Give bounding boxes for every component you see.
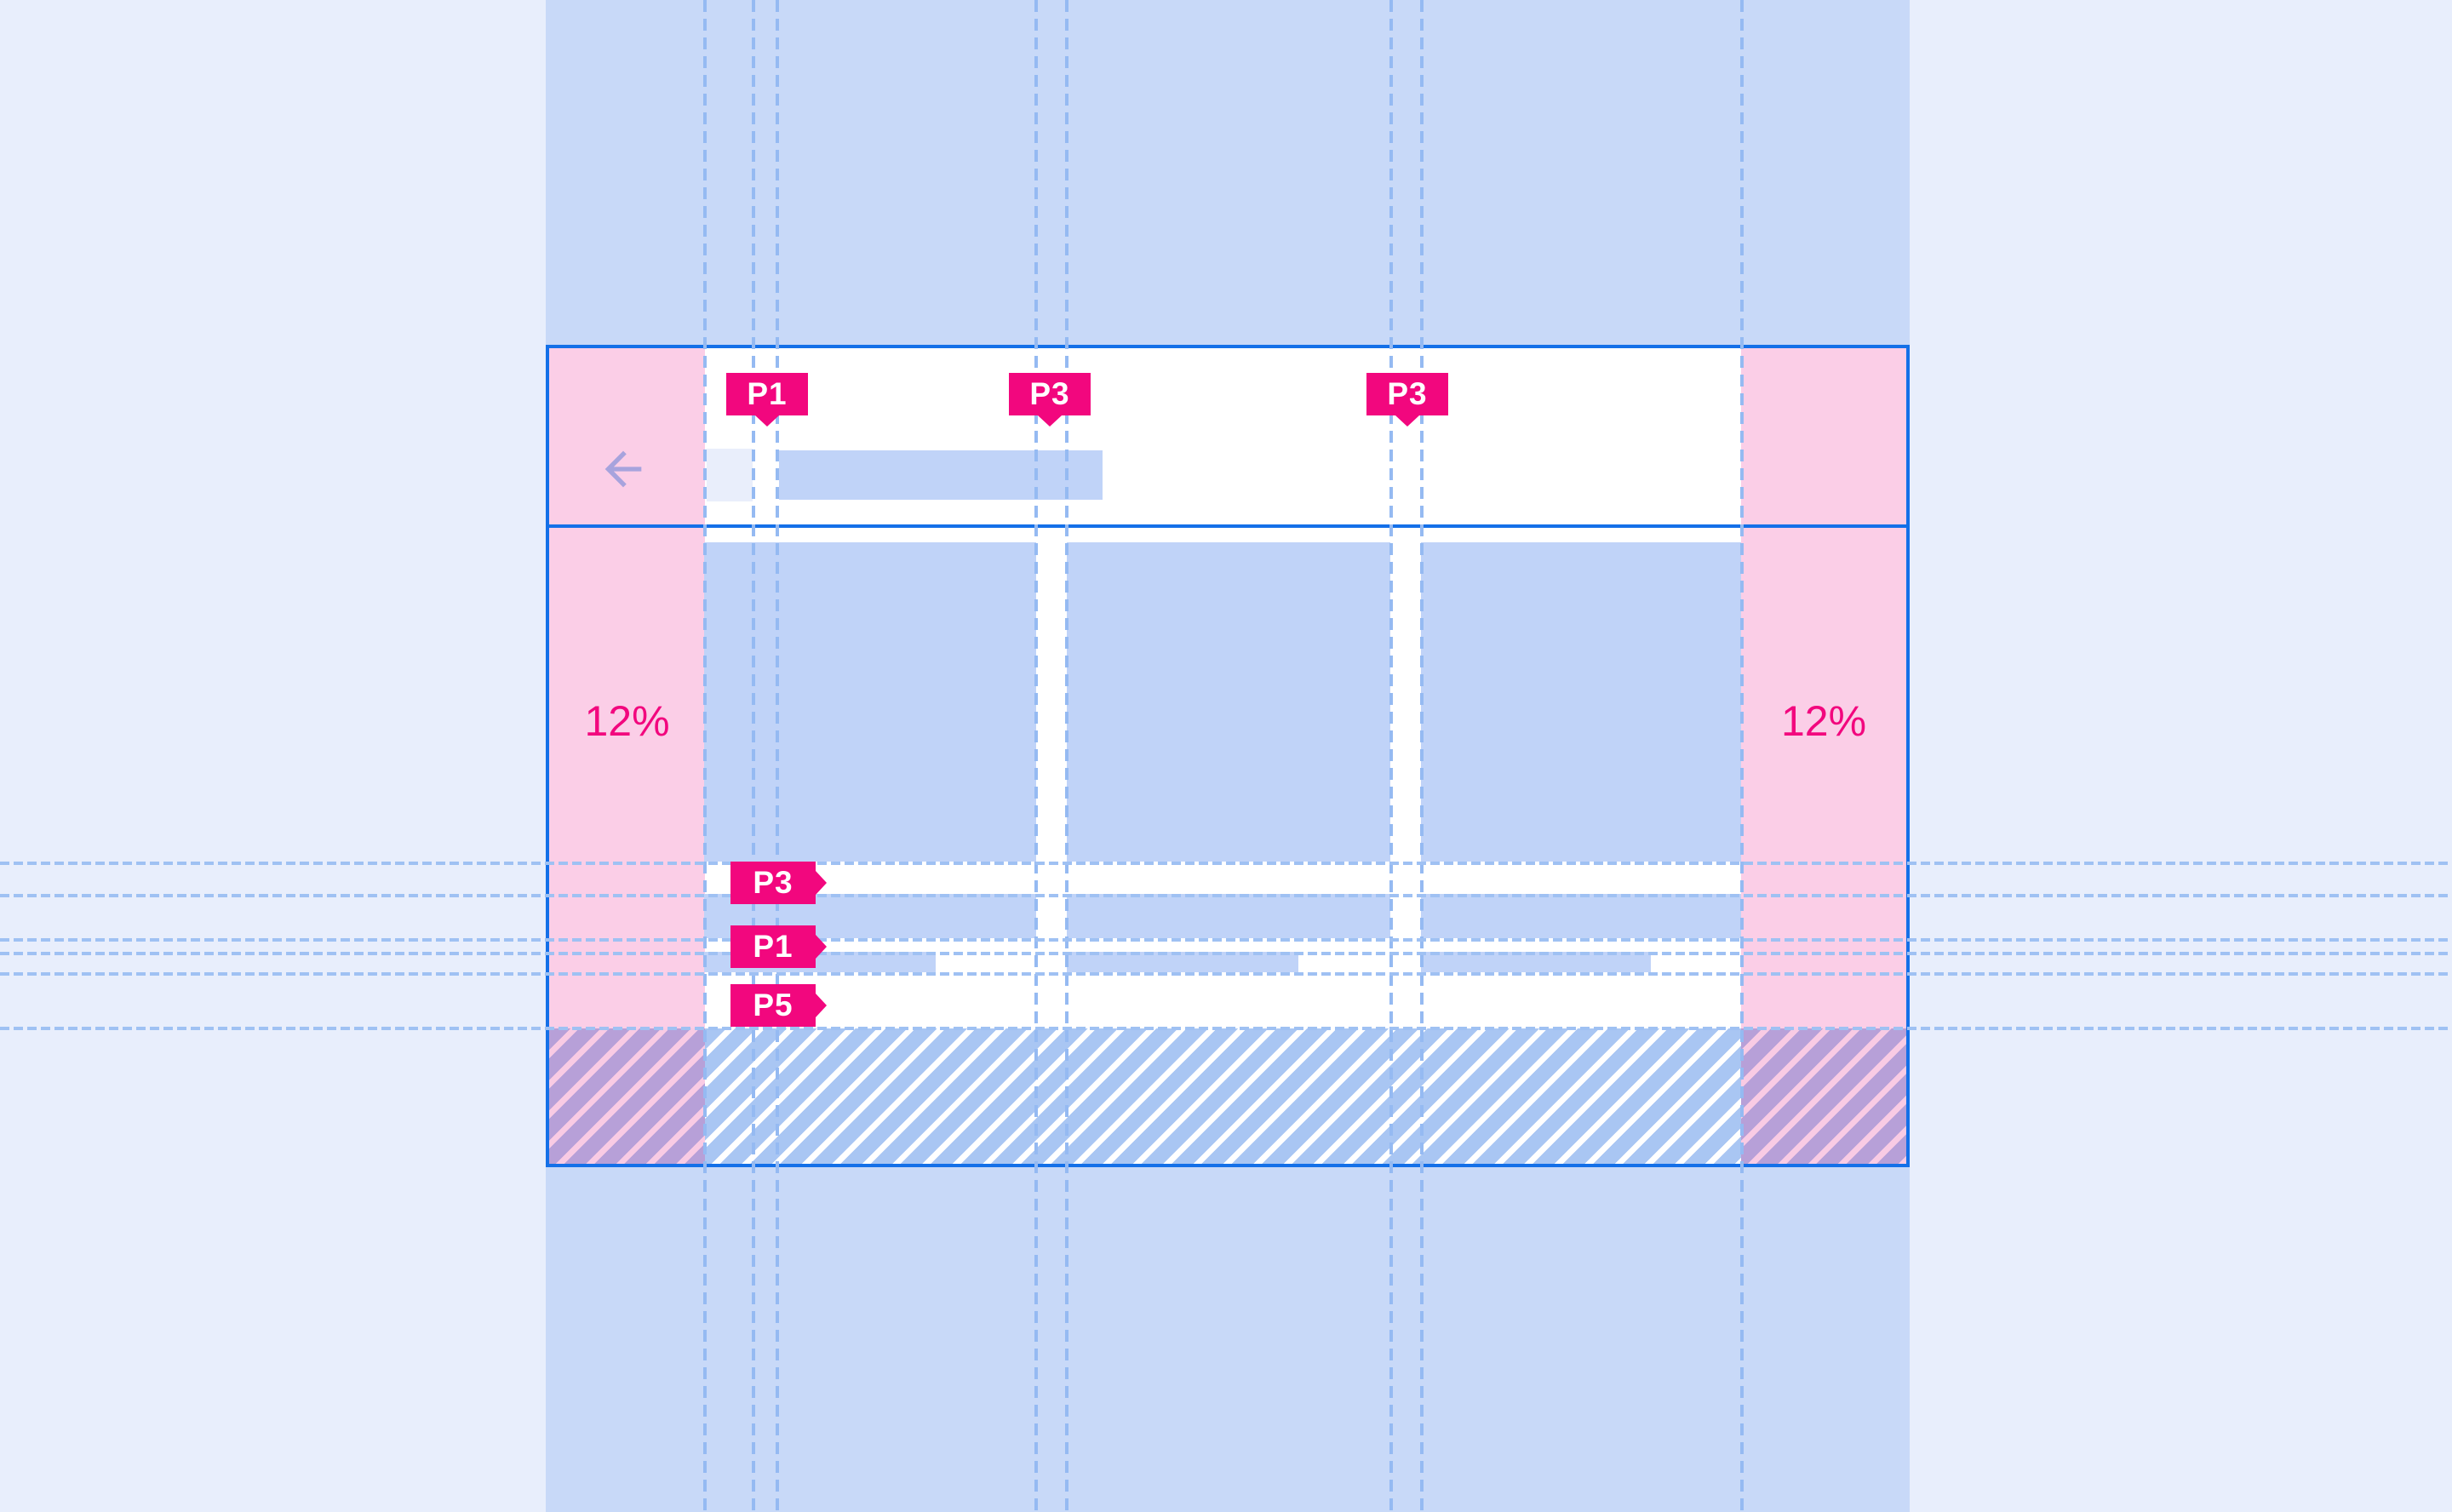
padding-tag-label: P3 (753, 865, 793, 901)
keyline-vertical-gutter2-left (1389, 0, 1393, 1512)
content-card-placeholder (1421, 542, 1741, 862)
keyline-horizontal-rowB-top (0, 952, 2452, 955)
design-spec-canvas: P1 P3 P3 P3 P1 P5 12% 12% (0, 0, 2452, 1512)
padding-tag-p3-vertical: P3 (730, 862, 816, 904)
keyline-vertical-margin-left (703, 0, 707, 1512)
padding-tag-label: P5 (753, 988, 793, 1023)
title-placeholder (779, 450, 1103, 500)
keyline-vertical-icon-gap-left (752, 0, 755, 1512)
nav-icon-placeholder (707, 449, 753, 501)
bottom-bar-hatch-right-margin (1741, 1028, 1906, 1164)
padding-tag-label: P3 (1387, 376, 1427, 412)
padding-tag-p5-vertical: P5 (730, 984, 816, 1027)
arrow-back-icon (596, 442, 650, 496)
padding-tag-label: P1 (747, 376, 787, 412)
bottom-bar-hatch-left-margin (549, 1028, 705, 1164)
back-button[interactable] (596, 442, 650, 496)
keyline-vertical-gutter2-right (1420, 0, 1424, 1512)
text-line-placeholder (1421, 894, 1741, 938)
left-margin-percent-label: 12% (549, 696, 705, 746)
content-card-placeholder (1067, 542, 1390, 862)
keyline-vertical-gutter1-right (1065, 0, 1068, 1512)
padding-tag-p3-gutter2: P3 (1366, 373, 1448, 415)
right-margin-percent-label: 12% (1741, 696, 1906, 746)
keyline-vertical-icon-gap-right (776, 0, 779, 1512)
screen-frame (546, 345, 1910, 1167)
keyline-vertical-gutter1-left (1034, 0, 1038, 1512)
keyline-horizontal-rowA-bottom (0, 938, 2452, 942)
padding-tag-p3-gutter1: P3 (1009, 373, 1091, 415)
keyline-horizontal-rowA-top (0, 894, 2452, 897)
bottom-bar-hatch (705, 1028, 1741, 1164)
keyline-horizontal-rowB-bottom (0, 972, 2452, 976)
keyline-horizontal-bottombar-top (0, 1027, 2452, 1030)
padding-tag-label: P1 (753, 929, 793, 965)
padding-tag-label: P3 (1029, 376, 1069, 412)
keyline-horizontal-card-bottom (0, 862, 2452, 865)
keyline-vertical-margin-right (1740, 0, 1744, 1512)
text-line-placeholder (1067, 894, 1390, 938)
padding-tag-p1-vertical: P1 (730, 925, 816, 968)
padding-tag-p1: P1 (726, 373, 808, 415)
